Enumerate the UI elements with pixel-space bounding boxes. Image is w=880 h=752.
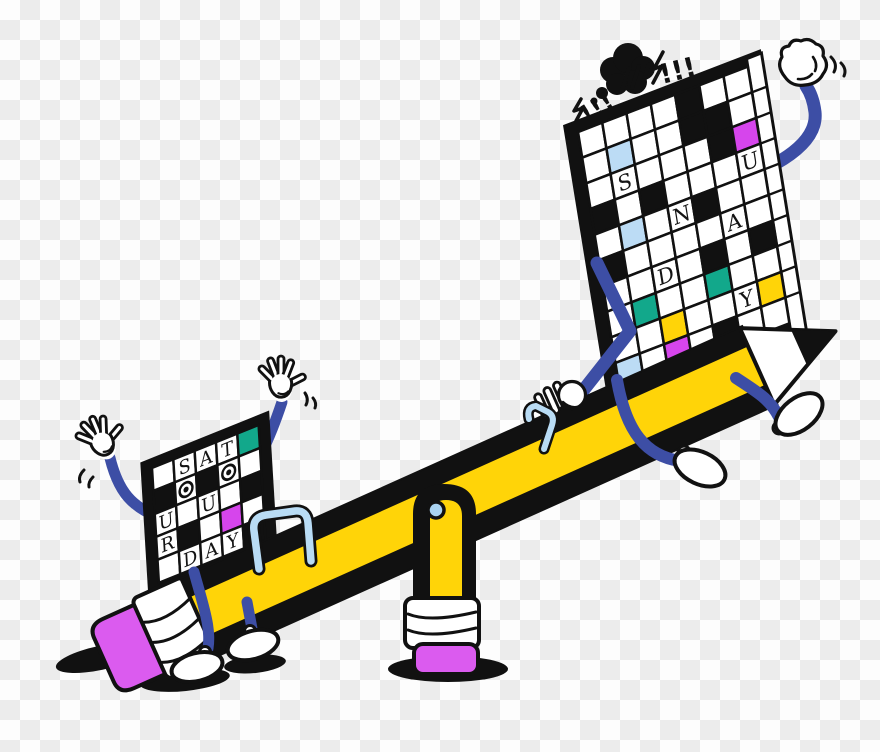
fist-motion-lines: [831, 57, 845, 76]
sunday-right-arm: [775, 86, 815, 164]
fulcrum-eraser: [414, 644, 478, 674]
fulcrum-ferrule: [405, 598, 479, 648]
sunday-right-arm-group: [775, 40, 845, 164]
left-hand-motion-lines: [80, 470, 94, 487]
open-hand-right-icon: [257, 354, 309, 404]
pencil-bottom-stripe: [207, 384, 776, 656]
grip-knuckle-glove-icon: [559, 382, 586, 409]
crossword-seesaw-illustration: !!! !!! SUNADY: [0, 0, 880, 752]
right-hand-motion-lines: [305, 393, 316, 408]
illustration-canvas: !!! !!! SUNADY: [0, 0, 880, 752]
pivot-bolt-icon: [428, 502, 444, 518]
fulcrum-post: [405, 484, 479, 674]
open-hand-left-icon: [70, 405, 134, 468]
